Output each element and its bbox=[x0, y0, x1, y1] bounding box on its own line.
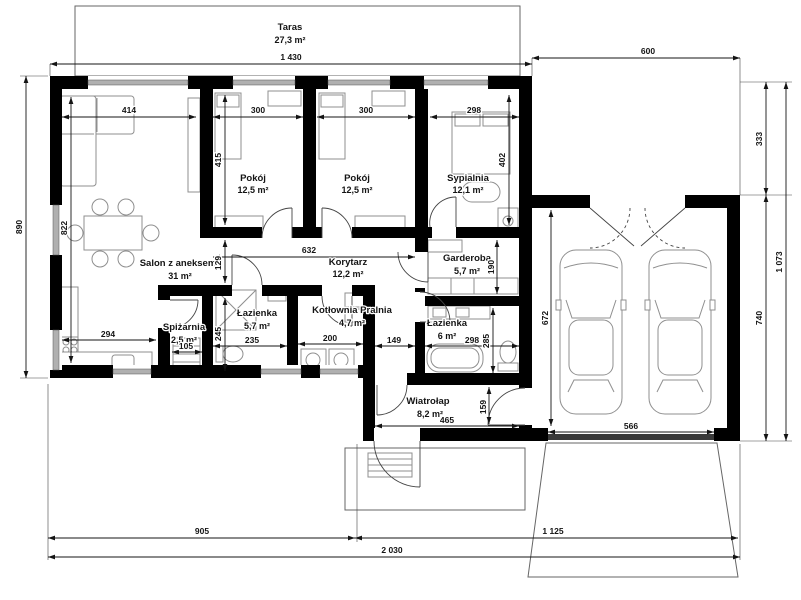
room-label-pokoj-2: Pokój bbox=[344, 173, 370, 184]
entry-steps bbox=[368, 453, 412, 477]
room-label-sypialnia: Sypialnia bbox=[447, 173, 489, 184]
room-area-pokoj-2: 12,5 m² bbox=[341, 185, 372, 195]
room-label-taras: Taras bbox=[278, 22, 303, 33]
dim-left-height: 890 bbox=[14, 220, 24, 234]
dim-lazienka2-height: 285 bbox=[481, 334, 491, 348]
living-room-furniture bbox=[60, 96, 200, 267]
dim-right-garage: 740 bbox=[754, 311, 764, 325]
dim-sypialnia-width: 298 bbox=[467, 105, 481, 115]
dim-right-wing: 600 bbox=[641, 46, 655, 56]
dim-garderoba-height: 190 bbox=[486, 260, 496, 274]
dim-lazienka1-width: 235 bbox=[245, 335, 259, 345]
room-area-korytarz: 12,2 m² bbox=[332, 269, 363, 279]
garage-door-slab bbox=[548, 434, 714, 440]
dim-korytarz-jog: 129 bbox=[213, 256, 223, 270]
car-right bbox=[645, 250, 715, 414]
room-area-kotlownia: 4,7 m² bbox=[339, 318, 365, 328]
dim-wiatrolap-width: 465 bbox=[440, 415, 454, 425]
dim-korytarz-width: 632 bbox=[302, 245, 316, 255]
dim-garage-door-width: 566 bbox=[624, 421, 638, 431]
room-area-salon: 31 m² bbox=[168, 271, 192, 281]
dim-kitchen-width: 294 bbox=[101, 329, 115, 339]
room-label-garderoba: Garderoba bbox=[443, 253, 492, 264]
dim-lazienka1-height: 245 bbox=[213, 327, 223, 341]
room-area-pokoj-1: 12,5 m² bbox=[237, 185, 268, 195]
room-area-garderoba: 5,7 m² bbox=[454, 266, 480, 276]
room-label-lazienka-1: Łazienka bbox=[237, 308, 278, 319]
room-area-taras: 27,3 m² bbox=[274, 35, 305, 45]
dim-bottom-total: 2 030 bbox=[381, 545, 403, 555]
car-left bbox=[556, 250, 626, 414]
dim-right-top: 333 bbox=[754, 132, 764, 146]
room-label-korytarz: Korytarz bbox=[329, 257, 368, 268]
floor-plan-svg: Taras 27,3 m² Salon z aneksem 31 m² Pokó… bbox=[0, 0, 801, 600]
room-label-salon: Salon z aneksem bbox=[140, 258, 217, 269]
dim-garage-height: 672 bbox=[540, 311, 550, 325]
dim-bottom-left: 905 bbox=[195, 526, 209, 536]
dim-sypialnia-height: 402 bbox=[497, 153, 507, 167]
dim-terrace-width: 1 430 bbox=[280, 52, 302, 62]
dim-pokoj2-width: 300 bbox=[359, 105, 373, 115]
room-label-kotlownia: Kotłownia Pralnia bbox=[312, 305, 392, 316]
dim-bottom-right: 1 125 bbox=[542, 526, 564, 536]
dim-pokoj1-height: 415 bbox=[213, 153, 223, 167]
room-label-lazienka-2: Łazienka bbox=[427, 318, 468, 329]
room-area-lazienka-1: 5,7 m² bbox=[244, 321, 270, 331]
room-area-lazienka-2: 6 m² bbox=[438, 331, 457, 341]
floor-plan-page: Taras 27,3 m² Salon z aneksem 31 m² Pokó… bbox=[0, 0, 801, 600]
dim-garage-door-side: 159 bbox=[478, 400, 488, 414]
dim-lazienka2-width: 298 bbox=[465, 335, 479, 345]
dim-salon-width: 414 bbox=[122, 105, 136, 115]
room-label-spizarnia: Spiżarnia bbox=[163, 322, 206, 333]
dim-right-total: 1 073 bbox=[774, 251, 784, 273]
dim-nook-width: 149 bbox=[387, 335, 401, 345]
dim-salon-height: 822 bbox=[59, 221, 69, 235]
garage-cars bbox=[556, 250, 715, 414]
dim-spizarnia-width: 105 bbox=[179, 341, 193, 351]
room-label-wiatrolap: Wiatrołap bbox=[406, 396, 449, 407]
room-label-pokoj-1: Pokój bbox=[240, 173, 266, 184]
dim-kotlownia-width: 200 bbox=[323, 333, 337, 343]
room-area-sypialnia: 12,1 m² bbox=[452, 185, 483, 195]
dim-pokoj1-width: 300 bbox=[251, 105, 265, 115]
